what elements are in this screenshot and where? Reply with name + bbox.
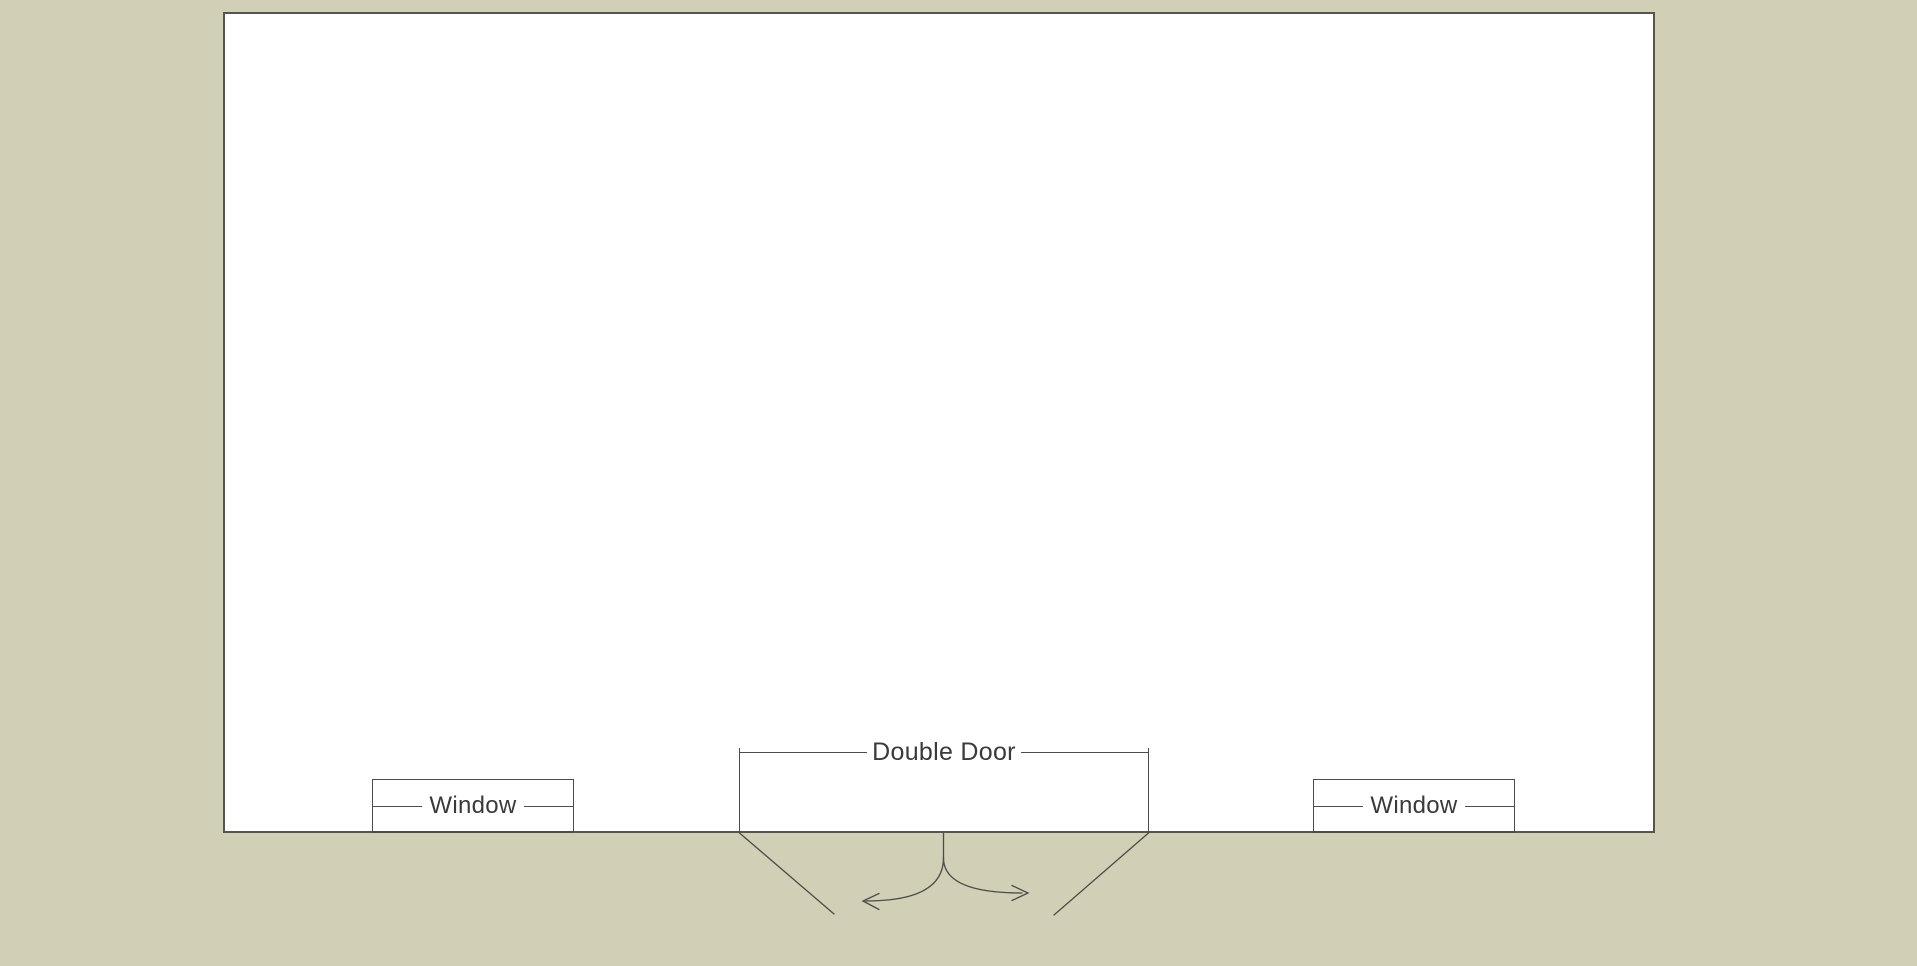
window-left-label: Window bbox=[422, 792, 523, 820]
floorplan-canvas: Window Window Double Door bbox=[0, 0, 1917, 966]
swing-arc-right bbox=[944, 858, 1023, 893]
swing-arc-left bbox=[866, 858, 944, 901]
arrowhead-right-icon bbox=[1012, 886, 1028, 901]
window-symbol-left[interactable]: Window bbox=[372, 779, 574, 833]
room-outline[interactable] bbox=[223, 12, 1655, 833]
door-leaf-left bbox=[740, 833, 835, 914]
window-symbol-right[interactable]: Window bbox=[1313, 779, 1515, 833]
door-leaf-right bbox=[1054, 833, 1149, 915]
door-label-row: Double Door bbox=[739, 739, 1149, 766]
window-right-label: Window bbox=[1363, 792, 1464, 820]
arrowhead-left-icon bbox=[863, 894, 879, 910]
double-door-label: Double Door bbox=[867, 738, 1021, 767]
